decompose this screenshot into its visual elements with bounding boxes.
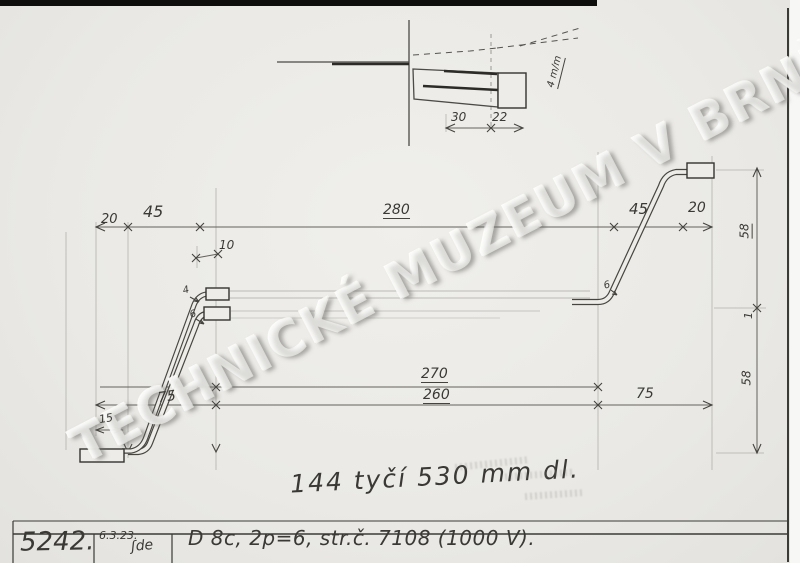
dim-label-75-right: 75	[636, 387, 654, 401]
lower-rod-ferrule	[204, 307, 230, 320]
dim-label-58-bottom: 58	[741, 370, 753, 385]
dim-label-75-left: 75	[157, 389, 177, 405]
dim-label-10: 10	[219, 239, 234, 251]
dim-label-20-right: 20	[688, 201, 706, 215]
upper-rod-ferrule	[206, 288, 229, 300]
dim-label-22: 22	[492, 111, 507, 123]
detail-section-view	[277, 20, 580, 146]
right-ferrule	[687, 163, 714, 178]
dim-label-45-left: 45	[143, 204, 163, 220]
dim-label-45-right: 45	[629, 202, 648, 217]
title-block-signature: ʃde	[130, 538, 153, 554]
title-block-inventory-number: 5242.	[20, 528, 95, 555]
dim-label-270: 270	[421, 367, 448, 383]
dim-label-260: 260	[423, 388, 450, 404]
dim-label-280: 280	[383, 203, 410, 219]
title-block-description: D 8c, 2p=6, str.č. 7108 (1000 V).	[188, 528, 535, 548]
scanned-technical-drawing: TECHNICKÉ MUZEUM V BRNĚ 30 22 4 m/m 20 4…	[0, 0, 800, 563]
dim-label-58-top: 58	[739, 223, 753, 238]
dim-label-15: 15	[98, 412, 114, 425]
dim-label-1: 1	[743, 312, 754, 319]
dim-label-30: 30	[451, 111, 466, 123]
dim-label-20-left: 20	[101, 213, 118, 226]
